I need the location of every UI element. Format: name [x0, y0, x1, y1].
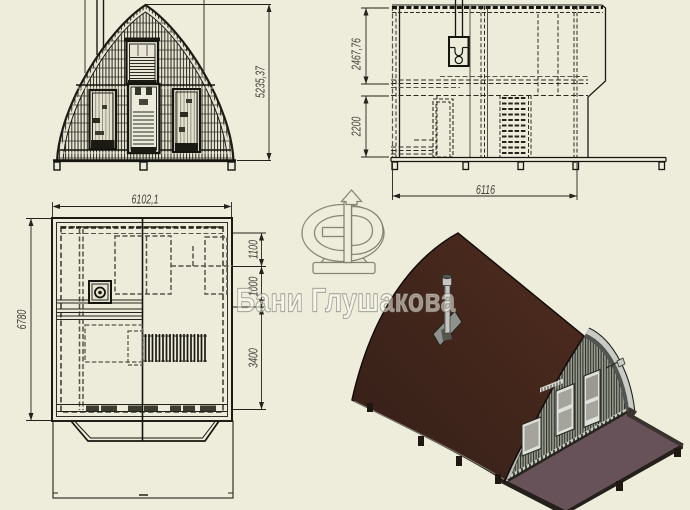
svg-text:6780: 6780 [15, 309, 29, 329]
svg-text:2467,76: 2467,76 [350, 37, 364, 70]
svg-text:1100: 1100 [247, 239, 261, 259]
svg-text:Бани Глушакова: Бани Глушакова [236, 283, 456, 319]
svg-text:6102,1: 6102,1 [131, 193, 158, 207]
svg-text:5235,37: 5235,37 [254, 65, 268, 98]
svg-text:2200: 2200 [350, 116, 364, 137]
svg-text:6116: 6116 [476, 183, 496, 197]
svg-text:3400: 3400 [247, 348, 261, 368]
